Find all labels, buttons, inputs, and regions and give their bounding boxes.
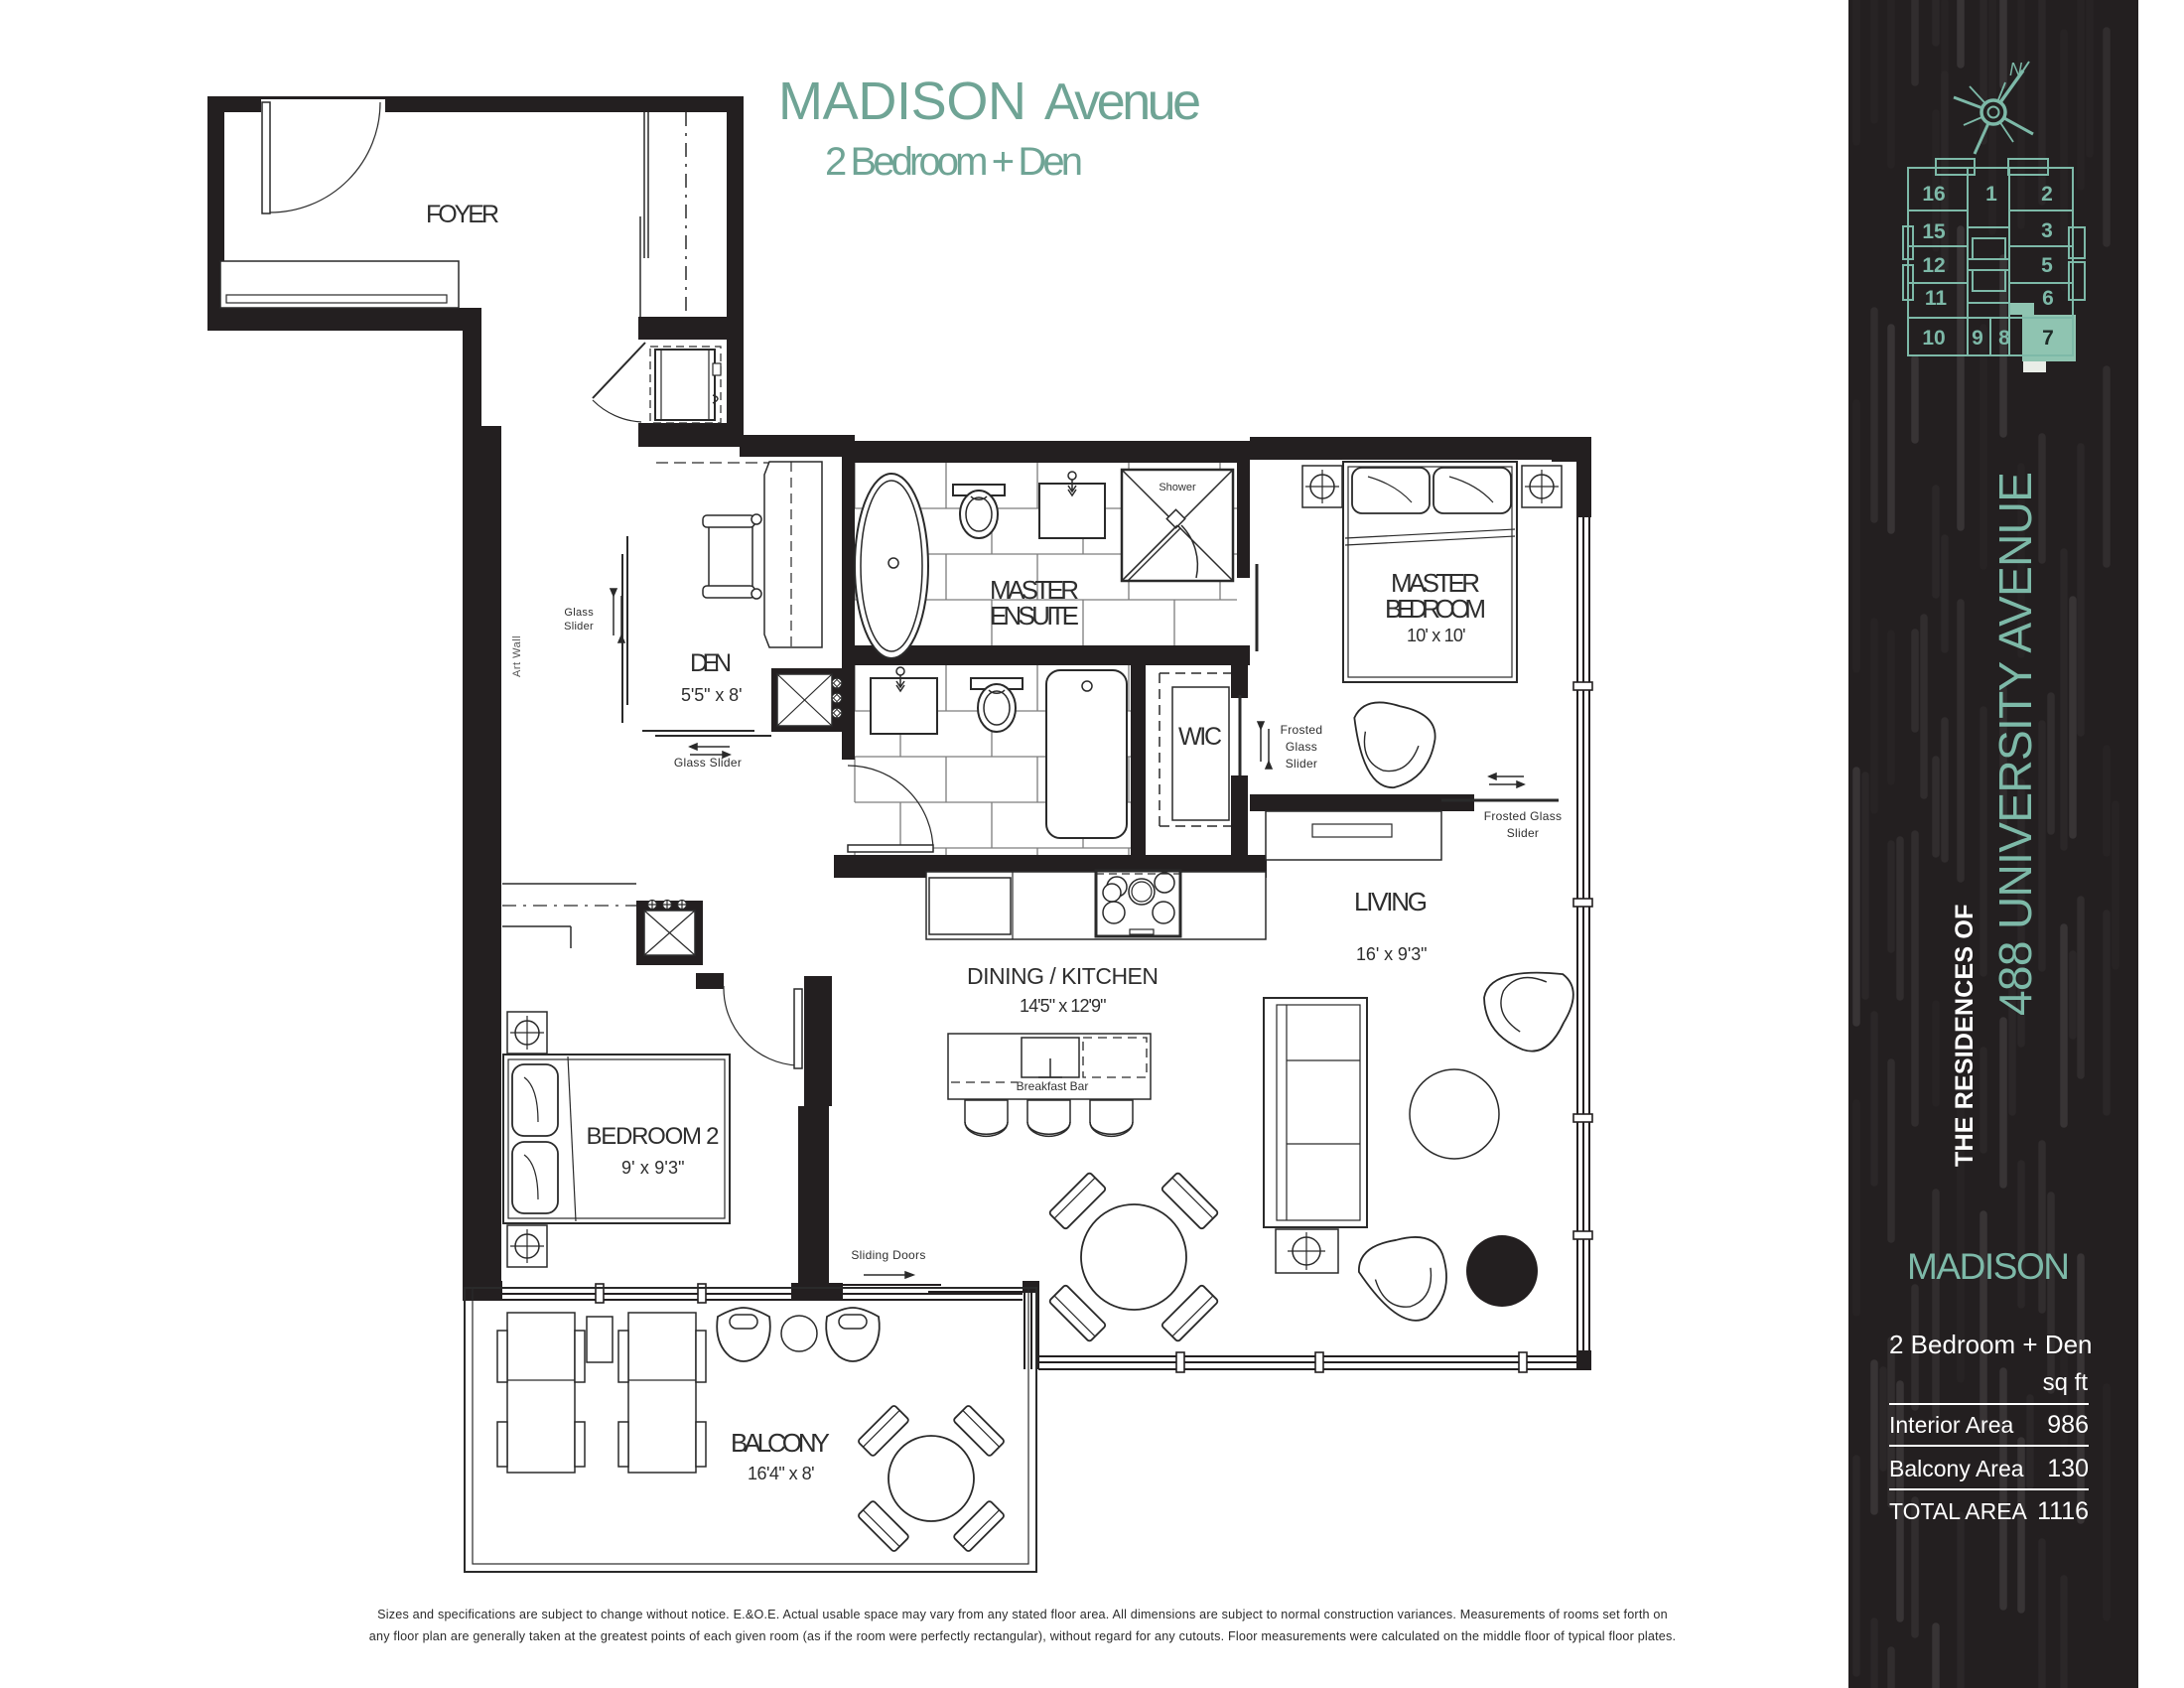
svg-text:7: 7 — [2042, 327, 2054, 350]
svg-text:BEDROOM: BEDROOM — [1385, 594, 1488, 624]
svg-text:12: 12 — [1922, 254, 1945, 277]
svg-text:6: 6 — [2042, 287, 2054, 310]
svg-text:2: 2 — [2041, 183, 2053, 206]
svg-text:Slider: Slider — [564, 621, 594, 633]
svg-text:Breakfast Bar: Breakfast Bar — [1017, 1079, 1089, 1093]
svg-text:10: 10 — [1922, 327, 1945, 350]
svg-text:TOTAL AREA: TOTAL AREA — [1889, 1498, 2028, 1524]
svg-text:Slider: Slider — [1507, 826, 1539, 840]
svg-text:DINING / KITCHEN: DINING / KITCHEN — [967, 963, 1160, 989]
svg-text:Avenue: Avenue — [1044, 73, 1201, 131]
svg-text:BEDROOM 2: BEDROOM 2 — [587, 1123, 721, 1150]
svg-text:BALCONY: BALCONY — [731, 1428, 832, 1458]
svg-text:16: 16 — [1922, 183, 1945, 206]
svg-text:1: 1 — [1985, 183, 1997, 206]
svg-text:sq ft: sq ft — [2043, 1369, 2089, 1396]
svg-text:Frosted Glass: Frosted Glass — [1484, 809, 1563, 823]
svg-text:ENSUITE: ENSUITE — [990, 601, 1081, 631]
svg-text:9: 9 — [1972, 327, 1983, 350]
svg-text:14'5" x 12'9": 14'5" x 12'9" — [1020, 996, 1107, 1016]
svg-text:5: 5 — [2041, 254, 2053, 277]
svg-text:15: 15 — [1922, 220, 1946, 243]
svg-text:Shower: Shower — [1159, 482, 1196, 493]
svg-text:FOYER: FOYER — [426, 201, 501, 228]
svg-text:N: N — [2009, 60, 2023, 79]
svg-text:Sliding Doors: Sliding Doors — [851, 1248, 925, 1262]
svg-text:488 UNIVERSITY AVENUE: 488 UNIVERSITY AVENUE — [1989, 472, 2041, 1016]
svg-text:8: 8 — [1998, 327, 2010, 350]
svg-text:THE RESIDENCES OF: THE RESIDENCES OF — [1951, 904, 1979, 1167]
svg-text:2 Bedroom + Den: 2 Bedroom + Den — [1889, 1330, 2093, 1359]
svg-text:3: 3 — [2041, 219, 2053, 242]
svg-text:Glass: Glass — [1286, 740, 1317, 754]
svg-text:Art Wall: Art Wall — [511, 635, 523, 677]
svg-text:Glass: Glass — [564, 607, 594, 619]
svg-text:MADISON: MADISON — [778, 71, 1026, 131]
svg-text:16' x 9'3": 16' x 9'3" — [1356, 944, 1428, 964]
svg-text:10' x 10': 10' x 10' — [1407, 626, 1466, 645]
svg-text:any floor plan are generally t: any floor plan are generally taken at th… — [369, 1629, 1676, 1643]
svg-text:DEN: DEN — [690, 649, 734, 677]
svg-text:2 Bedroom + Den: 2 Bedroom + Den — [825, 140, 1083, 184]
svg-text:Interior Area: Interior Area — [1889, 1412, 2013, 1438]
svg-text:Sizes and specifications are s: Sizes and specifications are subject to … — [377, 1608, 1668, 1621]
svg-text:WIC: WIC — [1178, 723, 1224, 751]
svg-text:Frosted: Frosted — [1281, 723, 1323, 737]
svg-text:11: 11 — [1925, 287, 1948, 310]
svg-text:130: 130 — [2047, 1455, 2089, 1482]
svg-text:1116: 1116 — [2037, 1497, 2089, 1525]
svg-text:Slider: Slider — [1286, 757, 1317, 771]
svg-text:16'4" x 8': 16'4" x 8' — [748, 1464, 815, 1483]
svg-text:9' x 9'3": 9' x 9'3" — [621, 1158, 685, 1178]
svg-text:Glass Slider: Glass Slider — [674, 756, 742, 770]
svg-text:986: 986 — [2047, 1411, 2089, 1439]
svg-text:MADISON: MADISON — [1907, 1246, 2070, 1287]
svg-text:5'5" x 8': 5'5" x 8' — [681, 685, 743, 705]
svg-text:Balcony Area: Balcony Area — [1889, 1456, 2024, 1481]
svg-text:LIVING: LIVING — [1354, 887, 1430, 916]
